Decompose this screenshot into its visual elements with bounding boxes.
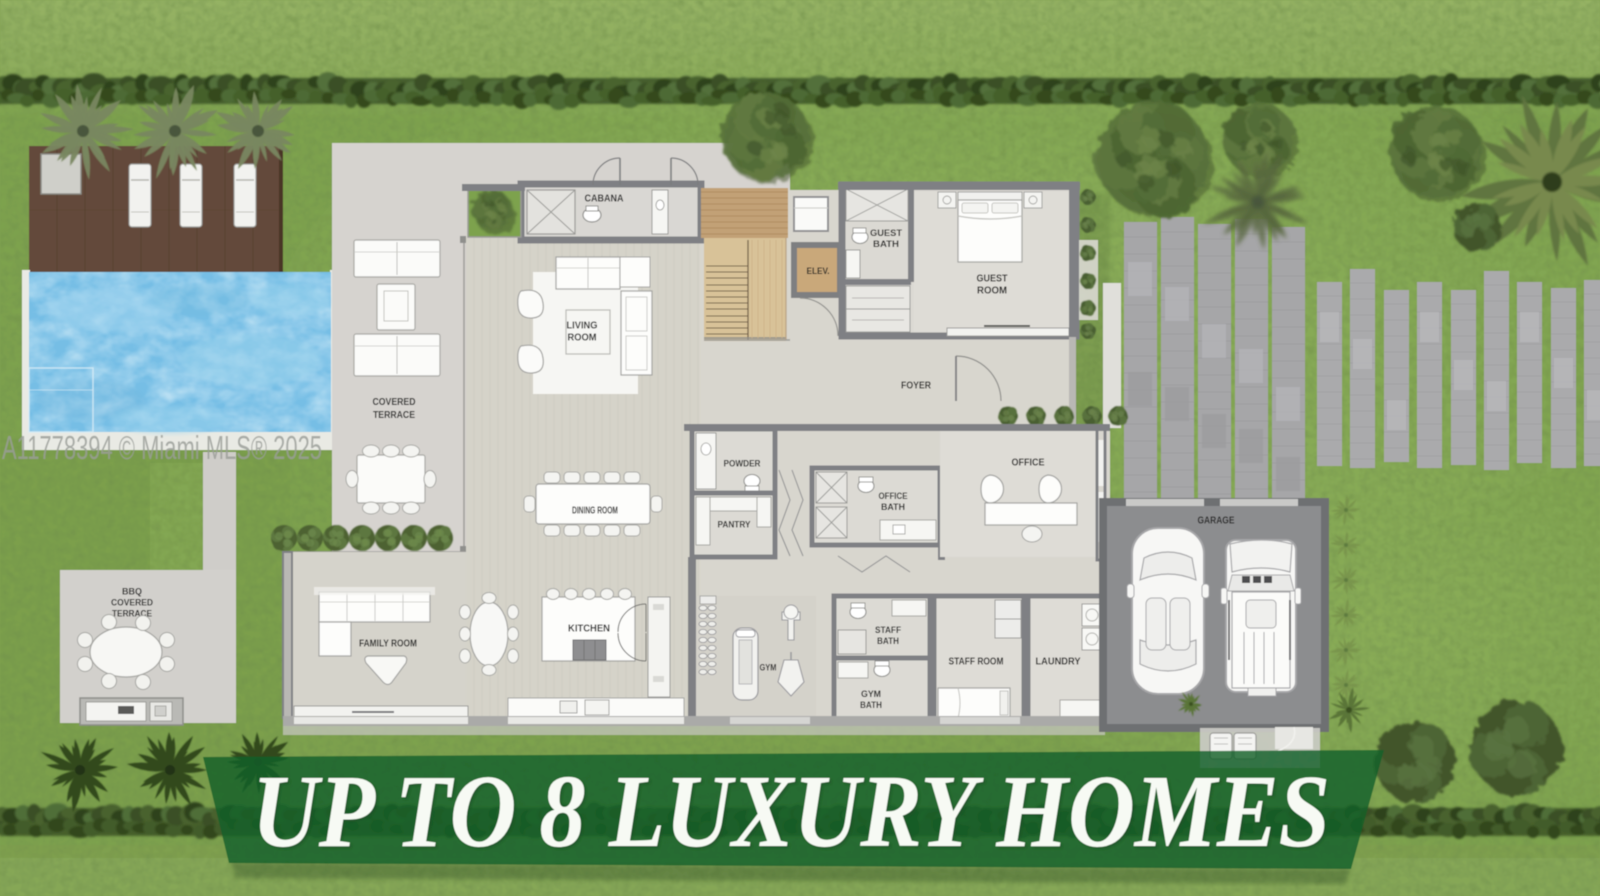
svg-text:ROOM: ROOM <box>977 286 1007 297</box>
svg-text:DINING ROOM: DINING ROOM <box>572 505 618 517</box>
svg-text:LIVING: LIVING <box>567 321 598 332</box>
svg-text:BATH: BATH <box>860 700 882 711</box>
svg-text:COVERED: COVERED <box>111 597 153 608</box>
svg-text:POWDER: POWDER <box>724 458 761 469</box>
svg-text:BATH: BATH <box>881 502 905 513</box>
svg-text:GUEST: GUEST <box>977 274 1008 285</box>
svg-text:ELEV.: ELEV. <box>807 266 830 276</box>
svg-text:COVERED: COVERED <box>373 396 416 408</box>
svg-text:FOYER: FOYER <box>901 381 932 392</box>
svg-text:LAUNDRY: LAUNDRY <box>1036 657 1081 668</box>
svg-text:FAMILY ROOM: FAMILY ROOM <box>359 638 417 650</box>
svg-text:KITCHEN: KITCHEN <box>568 623 610 635</box>
svg-text:OFFICE: OFFICE <box>1012 457 1045 469</box>
svg-text:CABANA: CABANA <box>585 194 624 205</box>
svg-text:TERRACE: TERRACE <box>373 409 415 421</box>
svg-text:UP TO 8 LUXURY HOMES: UP TO 8 LUXURY HOMES <box>252 754 1330 869</box>
svg-text:BATH: BATH <box>873 239 899 250</box>
svg-text:BBQ: BBQ <box>122 586 142 597</box>
svg-text:ROOM: ROOM <box>568 333 597 344</box>
svg-text:STAFF ROOM: STAFF ROOM <box>949 657 1004 668</box>
svg-text:PANTRY: PANTRY <box>718 519 752 530</box>
svg-text:BATH: BATH <box>877 636 899 647</box>
svg-text:GARAGE: GARAGE <box>1198 516 1235 527</box>
svg-text:GYM: GYM <box>861 689 881 700</box>
svg-text:GYM: GYM <box>760 662 777 673</box>
svg-text:STAFF: STAFF <box>875 625 901 636</box>
svg-text:A11778394 © Miami MLS® 2025: A11778394 © Miami MLS® 2025 <box>2 429 322 466</box>
svg-text:OFFICE: OFFICE <box>879 491 908 502</box>
svg-text:GUEST: GUEST <box>870 228 902 239</box>
